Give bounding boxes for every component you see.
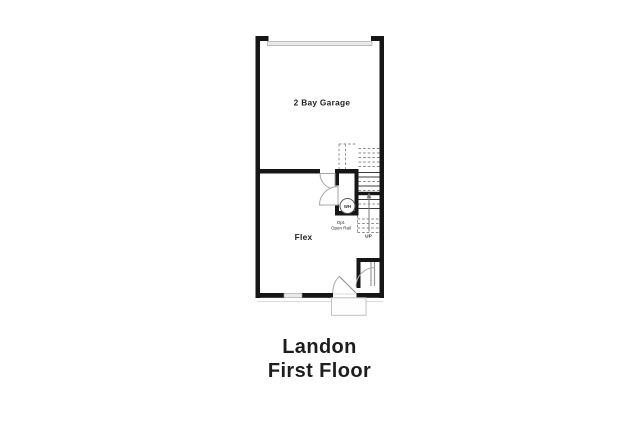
wh-closet-door-swing <box>320 187 339 206</box>
water-heater-closet: WH <box>335 169 359 216</box>
porch <box>332 298 367 316</box>
floor-plan-page: WH <box>0 0 639 426</box>
wall-left <box>256 36 261 298</box>
garage-flex-divider-wall <box>256 169 359 174</box>
wall-top-right-corner <box>371 36 384 41</box>
stair-landing-wall <box>356 192 380 195</box>
flex-room-label: Flex <box>295 232 313 242</box>
entry-door-arc <box>333 276 339 293</box>
window-bottom <box>284 294 302 298</box>
garage-door <box>268 42 373 46</box>
wall-bottom-segment <box>256 293 285 298</box>
wall-entry-closet-top <box>357 258 385 262</box>
water-heater-label: WH <box>344 204 351 209</box>
wall-closet-left-upper <box>335 169 339 186</box>
plan-name: Landon <box>0 336 639 360</box>
opt-rail-note-line1: Opt. <box>337 220 346 225</box>
plan-title: Landon First Floor <box>0 336 639 383</box>
entry-door-leaf <box>339 276 356 293</box>
wall-bottom-segment <box>302 293 333 298</box>
garage-entry-door-swing <box>320 174 335 190</box>
floor-name: First Floor <box>0 360 639 384</box>
opt-rail-note-line2: Open Rail <box>331 226 351 231</box>
wall-bottom-segment <box>357 293 385 298</box>
wall-divider-left <box>256 169 321 174</box>
wall-entry-closet-left <box>357 258 361 288</box>
up-label: UP <box>365 234 372 240</box>
garage-room-label: 2 Bay Garage <box>294 98 351 108</box>
wall-top-left-corner <box>256 36 269 41</box>
